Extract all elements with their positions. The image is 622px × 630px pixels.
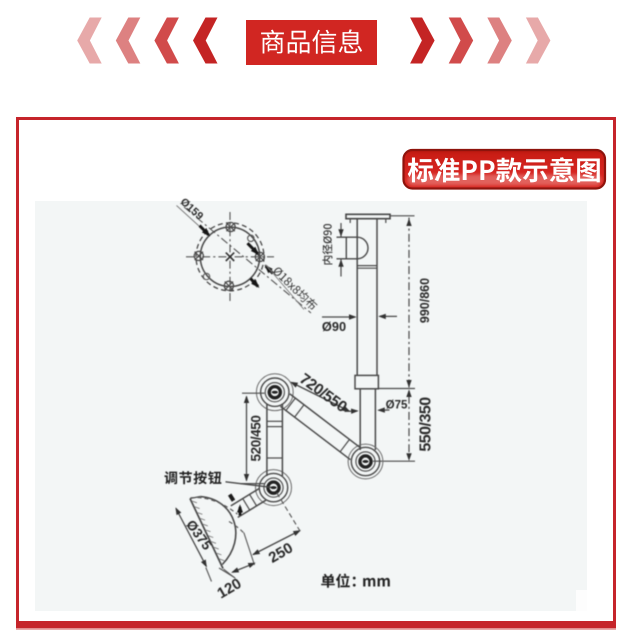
svg-text:990/860: 990/860 — [418, 278, 432, 323]
svg-text:520/450: 520/450 — [248, 416, 263, 462]
svg-text:550/350: 550/350 — [417, 397, 434, 452]
svg-text:Ø90: Ø90 — [322, 319, 346, 334]
